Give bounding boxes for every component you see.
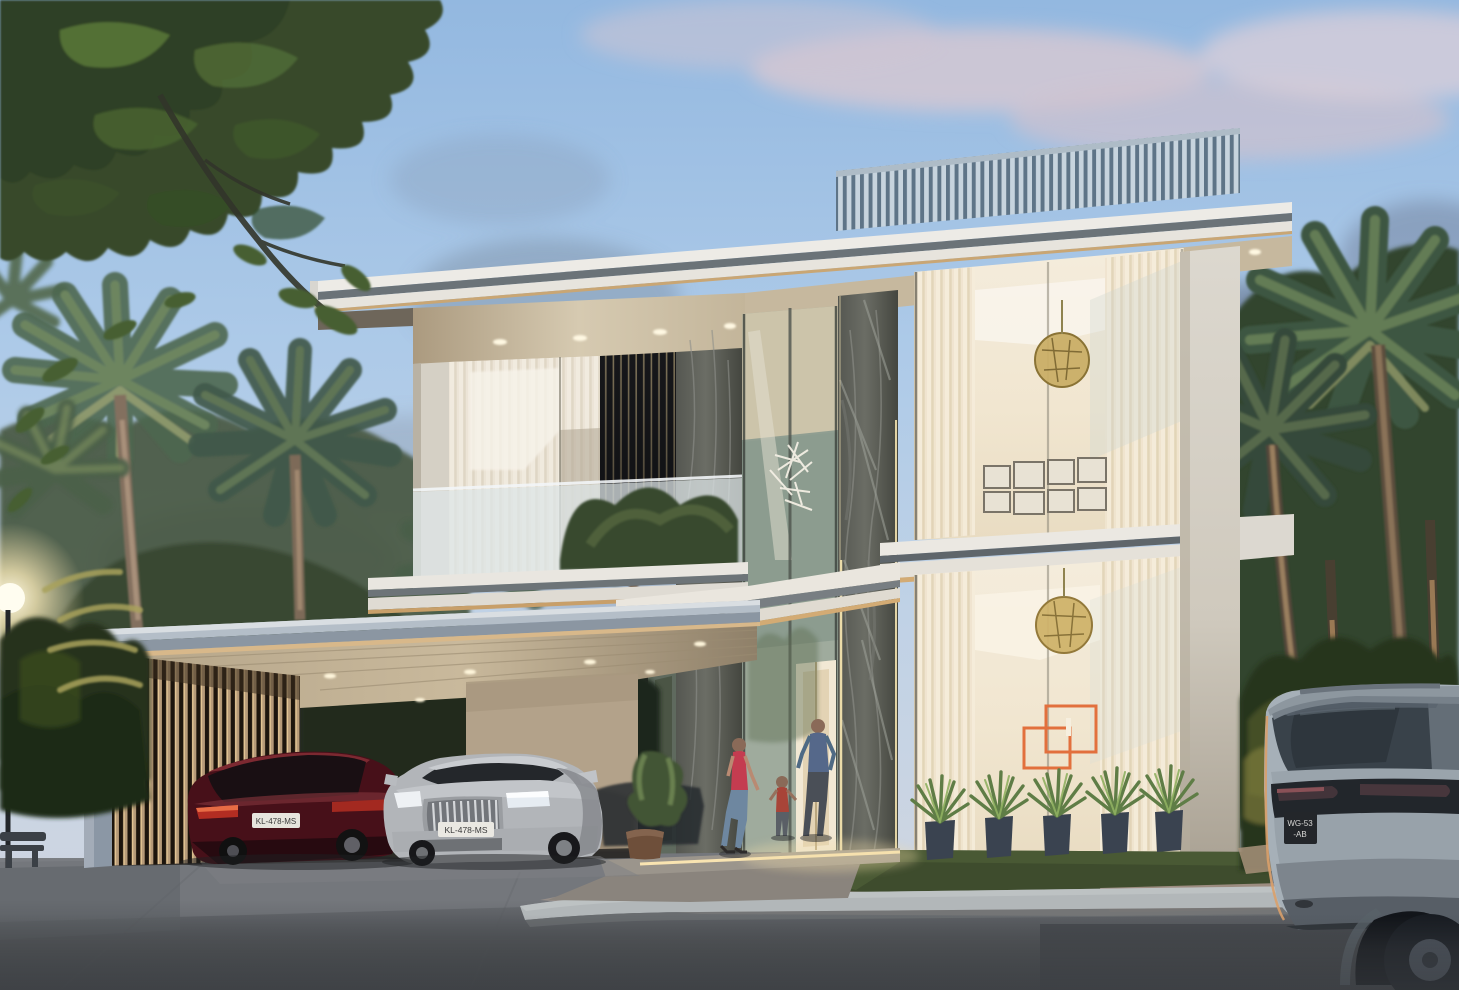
- svg-text:-AB: -AB: [1293, 830, 1306, 839]
- svg-text:WG-53: WG-53: [1287, 819, 1313, 828]
- svg-text:KL-478-MS: KL-478-MS: [256, 817, 296, 826]
- svg-text:KL-478-MS: KL-478-MS: [445, 825, 488, 835]
